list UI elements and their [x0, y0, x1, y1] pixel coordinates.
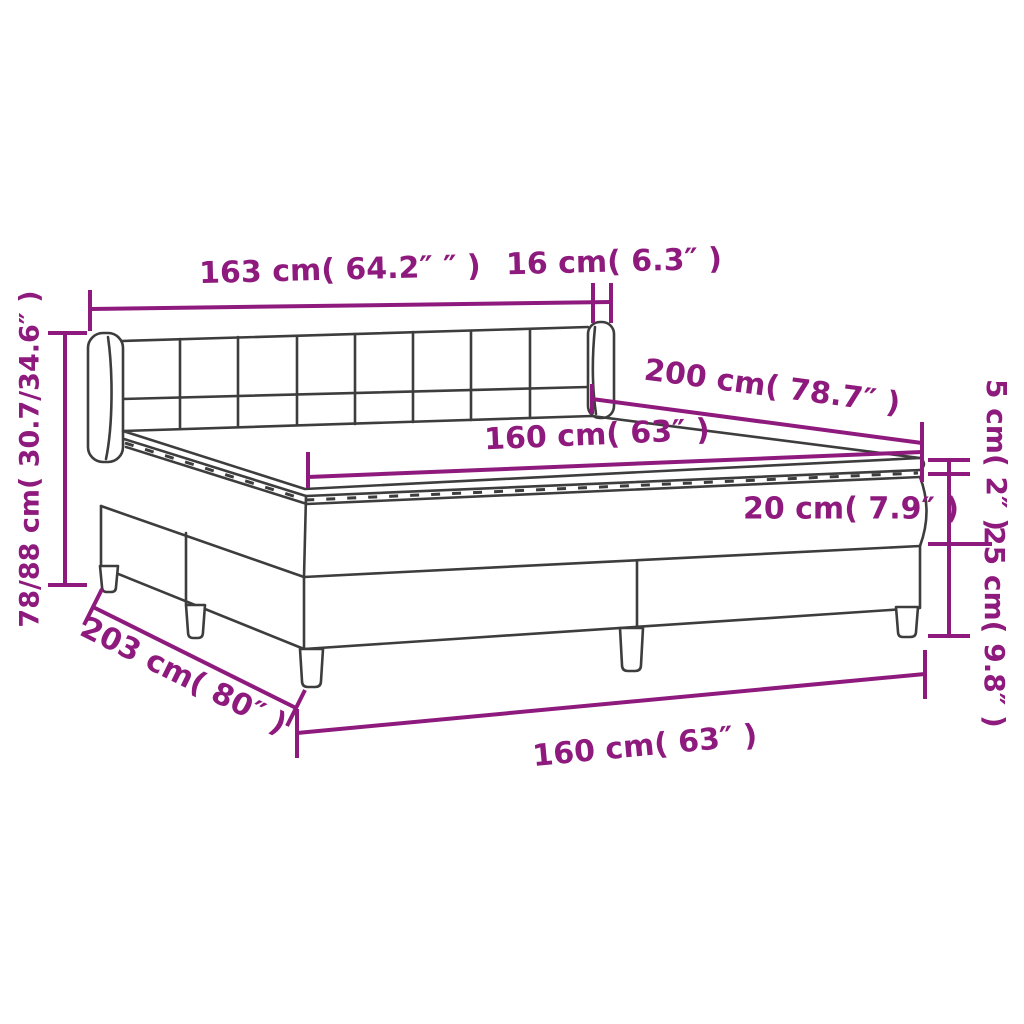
leg — [186, 605, 205, 638]
diagram-canvas: 163 cm( 64.2″ ″ ) 16 cm( 6.3″ ) 78/88 cm… — [0, 0, 1024, 1024]
bed-dimension-diagram: 163 cm( 64.2″ ″ ) 16 cm( 6.3″ ) 78/88 cm… — [0, 0, 1024, 1024]
dim-label-mattress-height: 20 cm( 7.9″ ) — [743, 492, 959, 527]
mattress-front-corner-edge — [304, 496, 306, 577]
dim-line — [297, 674, 925, 733]
leg — [620, 628, 643, 671]
base-outline — [101, 506, 920, 649]
dim-label-headboard-depth: 16 cm( 6.3″ ) — [506, 242, 723, 283]
leg — [300, 649, 323, 687]
legs — [100, 566, 918, 687]
leg — [100, 566, 118, 592]
dim-label-base-height: 25 cm( 9.8″ ) — [978, 526, 1011, 728]
dim-base-width: 160 cm( 63″ ) — [297, 650, 925, 774]
headboard-grid-lines — [180, 329, 530, 429]
dim-label-total-height: 78/88 cm( 30.7/34.6″ ) — [15, 290, 46, 627]
dim-label-base-width: 160 cm( 63″ ) — [531, 718, 759, 774]
headboard-left-post — [88, 333, 123, 462]
dim-headboard-width: 163 cm( 64.2″ ″ ) 16 cm( 6.3″ ) — [90, 242, 722, 331]
leg — [896, 607, 918, 637]
dim-label-topper-height: 5 cm( 2″ ) — [980, 379, 1013, 531]
dim-line — [90, 302, 611, 309]
dim-total-height: 78/88 cm( 30.7/34.6″ ) — [15, 290, 88, 627]
box-spring-base — [101, 506, 920, 649]
dim-label-headboard-width: 163 cm( 64.2″ ″ ) — [199, 249, 482, 291]
